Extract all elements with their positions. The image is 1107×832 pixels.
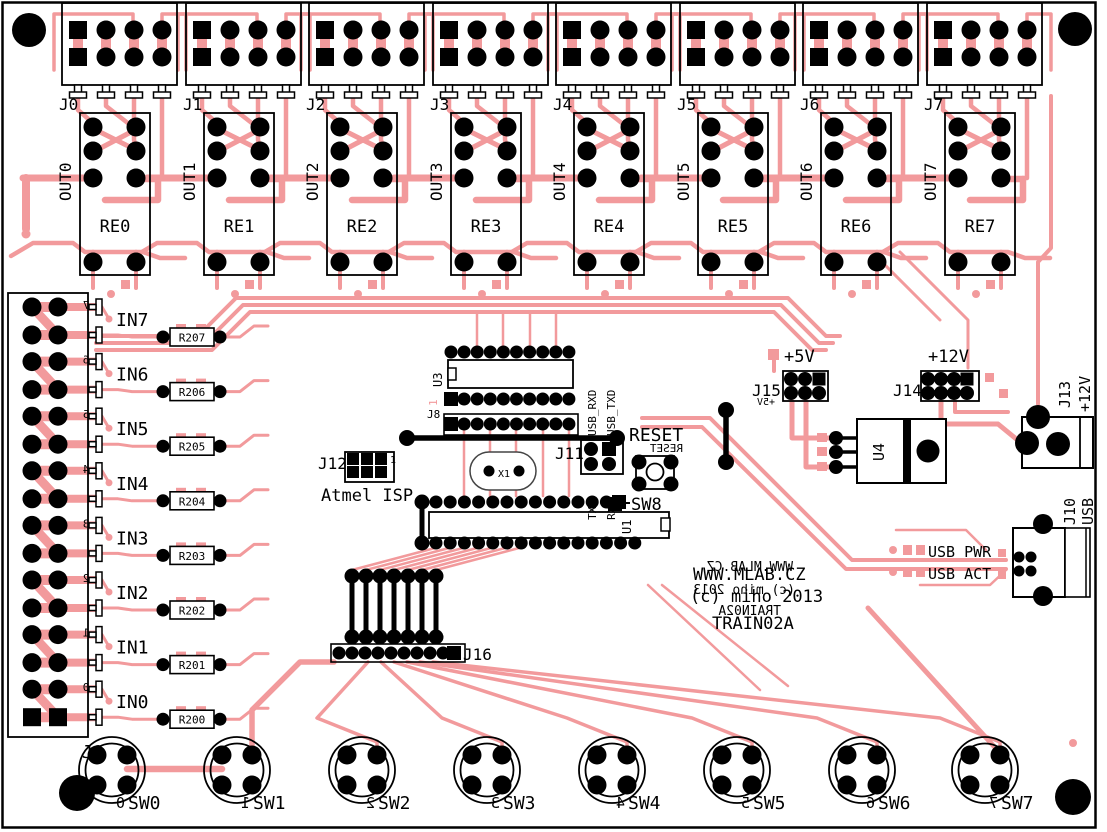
pad — [214, 658, 227, 671]
j13-12v-label: +12V — [1076, 376, 1094, 412]
pad-square — [440, 48, 458, 66]
pad — [771, 21, 790, 40]
connector-label: J2 — [306, 95, 325, 114]
outline — [96, 627, 102, 643]
pad — [510, 346, 523, 359]
pad — [49, 352, 68, 371]
outline — [373, 92, 390, 98]
u1-label: U1 — [620, 520, 634, 534]
pad — [23, 680, 42, 699]
pad — [84, 142, 103, 161]
usb-txd-label: USB_TXD — [605, 390, 618, 436]
pad — [868, 142, 887, 161]
pad — [458, 393, 471, 406]
pad — [430, 496, 443, 509]
pad — [471, 393, 484, 406]
pad — [214, 385, 227, 398]
pad-square — [934, 21, 952, 39]
pad — [949, 118, 968, 137]
pad — [277, 48, 296, 67]
pad — [430, 537, 443, 550]
pad-square — [934, 48, 952, 66]
outline — [96, 655, 102, 671]
pad — [578, 253, 597, 272]
pad — [345, 569, 360, 584]
smd-pad — [739, 280, 748, 289]
pad — [829, 460, 843, 474]
outline — [222, 92, 239, 98]
pad-square — [813, 373, 826, 386]
pad — [493, 746, 512, 765]
pad — [621, 253, 640, 272]
pad — [429, 630, 444, 645]
outline — [278, 92, 295, 98]
pad-square — [447, 646, 461, 660]
outline — [525, 92, 542, 98]
pad — [990, 21, 1009, 40]
smd-pad — [998, 571, 1006, 579]
pad — [458, 496, 471, 509]
pad — [399, 430, 415, 446]
pad — [868, 746, 887, 765]
board-outline — [3, 3, 1096, 828]
mirrored-bottom-silk-label: 6 — [866, 794, 875, 812]
via — [106, 425, 113, 432]
pad — [949, 253, 968, 272]
pad — [127, 169, 146, 188]
pad — [784, 386, 798, 400]
outline — [744, 92, 761, 98]
pad — [157, 331, 170, 344]
pad — [372, 48, 391, 67]
outline — [867, 92, 884, 98]
pad — [838, 48, 857, 67]
pad-square — [49, 708, 67, 726]
pad — [586, 537, 599, 550]
pad — [372, 21, 391, 40]
pad — [458, 346, 471, 359]
relay-label: RE2 — [347, 217, 378, 237]
j15-label: J15 — [752, 381, 781, 400]
pad — [484, 346, 497, 359]
pad — [1033, 514, 1053, 534]
smd-pad — [817, 447, 827, 456]
pad — [713, 776, 732, 795]
outline — [895, 92, 912, 98]
pad — [221, 21, 240, 40]
outline — [401, 92, 418, 98]
pad — [866, 21, 885, 40]
pad — [562, 418, 575, 431]
outline — [772, 92, 789, 98]
outline — [96, 572, 102, 588]
pad — [344, 48, 363, 67]
outline — [154, 92, 171, 98]
pad — [524, 48, 543, 67]
resistor-label: R202 — [179, 605, 206, 618]
pad — [702, 169, 721, 188]
j14-label: J14 — [893, 381, 922, 400]
pad — [387, 630, 402, 645]
outline — [89, 442, 96, 447]
pad — [243, 776, 262, 795]
pad — [214, 604, 227, 617]
pad — [868, 776, 887, 795]
pad — [214, 440, 227, 453]
pad — [619, 48, 638, 67]
pad-square — [316, 21, 334, 39]
outline — [96, 327, 102, 343]
pad — [523, 418, 536, 431]
pad — [562, 346, 575, 359]
u4-label: U4 — [870, 443, 888, 461]
out-label: OUT6 — [797, 162, 816, 201]
pad — [331, 253, 350, 272]
connector-label: J5 — [677, 95, 696, 114]
outline — [250, 92, 267, 98]
smd-pad — [999, 389, 1008, 398]
outline — [96, 408, 102, 424]
pad — [557, 537, 570, 550]
pad — [23, 380, 42, 399]
pad — [713, 746, 732, 765]
pad — [1014, 566, 1025, 577]
pad-square — [193, 48, 211, 66]
smd-pad — [121, 280, 130, 289]
usb-act-label: USB ACT — [928, 565, 991, 583]
pad-square — [687, 21, 705, 39]
outline — [96, 436, 102, 452]
pad — [331, 118, 350, 137]
pad — [647, 464, 664, 481]
pad — [208, 169, 227, 188]
via — [22, 230, 31, 239]
pad — [345, 630, 360, 645]
pad — [745, 169, 764, 188]
pad — [562, 393, 575, 406]
switch-label: SW0 — [128, 793, 161, 814]
smd-pad — [615, 280, 624, 289]
pad — [125, 48, 144, 67]
pad — [472, 537, 485, 550]
mirrored-bottom-silk-label: 0 — [116, 794, 125, 812]
pad — [496, 48, 515, 67]
pad — [472, 496, 485, 509]
pad — [373, 569, 388, 584]
via — [889, 546, 897, 554]
pad — [221, 48, 240, 67]
outline — [96, 463, 102, 479]
pad — [825, 253, 844, 272]
pad — [825, 169, 844, 188]
pad — [49, 625, 68, 644]
j12-label: J12 — [318, 454, 347, 473]
pad — [374, 169, 393, 188]
pad — [23, 461, 42, 480]
pad — [584, 457, 598, 471]
pad — [745, 142, 764, 161]
mirrored-bottom-silk-label: 3 — [491, 794, 500, 812]
pad — [157, 658, 170, 671]
switch-label: SW6 — [878, 793, 911, 814]
pad — [23, 653, 42, 672]
pad — [88, 776, 107, 795]
relay-label: RE0 — [100, 217, 131, 237]
pad — [497, 393, 510, 406]
pad — [493, 776, 512, 795]
pad — [359, 630, 374, 645]
pad — [498, 169, 517, 188]
pad-square — [563, 48, 581, 66]
pad — [501, 496, 514, 509]
outline — [96, 600, 102, 616]
pad — [455, 118, 474, 137]
pad — [157, 713, 170, 726]
pad — [498, 142, 517, 161]
resistor-label: R201 — [179, 659, 206, 672]
pad — [591, 48, 610, 67]
pad — [157, 440, 170, 453]
u3-label: U3 — [431, 373, 445, 387]
outline — [96, 681, 102, 697]
outline — [96, 299, 102, 315]
pad — [400, 21, 419, 40]
pad — [798, 386, 812, 400]
pad — [84, 169, 103, 188]
pad — [621, 118, 640, 137]
relay-label: RE3 — [471, 217, 502, 237]
smd-pad — [903, 545, 912, 555]
pad — [208, 253, 227, 272]
pad — [868, 169, 887, 188]
pad — [743, 48, 762, 67]
pad — [415, 630, 430, 645]
pad — [49, 326, 68, 345]
out-label: OUT5 — [674, 162, 693, 201]
pad — [718, 454, 734, 470]
outline — [661, 518, 670, 531]
relay-label: RE1 — [224, 217, 255, 237]
pad — [471, 418, 484, 431]
outline — [345, 92, 362, 98]
pad — [49, 407, 68, 426]
pad — [743, 776, 762, 795]
pad — [962, 48, 981, 67]
outline — [448, 368, 456, 380]
mirrored-bottom-silk-label: 0 — [83, 681, 90, 694]
pad — [208, 118, 227, 137]
input-label: IN6 — [116, 365, 149, 386]
smd-pad — [985, 373, 994, 382]
pad — [1015, 431, 1039, 455]
pad — [213, 746, 232, 765]
switch-label: SW7 — [1001, 793, 1034, 814]
smd-pad — [862, 280, 871, 289]
reset-label: RESET — [629, 425, 683, 446]
pad-square — [361, 453, 373, 465]
input-label: IN5 — [116, 419, 149, 440]
pad — [498, 253, 517, 272]
pad — [23, 435, 42, 454]
connector-label: J1 — [183, 95, 202, 114]
pad — [374, 253, 393, 272]
pad — [415, 536, 430, 551]
outline — [991, 92, 1008, 98]
pad — [463, 776, 482, 795]
outline — [89, 660, 96, 665]
mounting-hole — [1058, 12, 1092, 46]
pad — [514, 466, 525, 477]
pad-square — [375, 466, 387, 478]
pad-square — [444, 417, 458, 431]
pad-square — [961, 373, 974, 386]
mirrored-bottom-silk-label: 4 — [616, 794, 625, 812]
mirrored-bottom-silk-label: 6 — [83, 354, 90, 367]
pad — [664, 477, 679, 492]
pad — [1046, 432, 1070, 456]
pad — [619, 21, 638, 40]
out-label: OUT7 — [921, 162, 940, 201]
smd-pad — [903, 567, 912, 577]
pad — [745, 118, 764, 137]
connector-label: J6 — [800, 95, 819, 114]
pad — [894, 48, 913, 67]
pad — [584, 442, 598, 456]
pad — [949, 142, 968, 161]
pad — [743, 746, 762, 765]
pad — [992, 253, 1011, 272]
pad — [960, 386, 974, 400]
pad — [359, 647, 372, 660]
pad — [49, 544, 68, 563]
pad — [127, 253, 146, 272]
pad — [486, 496, 499, 509]
pad — [825, 142, 844, 161]
pad — [338, 776, 357, 795]
outline — [89, 333, 96, 338]
pad — [1026, 566, 1037, 577]
outline — [89, 551, 96, 556]
header-j12-atmel-isp — [345, 452, 394, 482]
mirrored-bottom-silk-label: 3 — [83, 517, 90, 530]
pad — [243, 746, 262, 765]
resistor-label: R206 — [179, 386, 206, 399]
relay-label: RE5 — [718, 217, 749, 237]
pad — [471, 346, 484, 359]
outline — [716, 92, 733, 98]
relay-label: RE4 — [594, 217, 625, 237]
via — [106, 370, 113, 377]
pad — [743, 21, 762, 40]
pad — [249, 21, 268, 40]
pad — [838, 746, 857, 765]
pad — [1018, 48, 1037, 67]
pad — [486, 537, 499, 550]
pad — [602, 457, 616, 471]
pad — [628, 537, 641, 550]
pad — [157, 494, 170, 507]
pad — [632, 455, 647, 470]
pad — [415, 569, 430, 584]
pad — [812, 386, 826, 400]
outline — [126, 92, 143, 98]
pad — [702, 142, 721, 161]
pad — [153, 48, 172, 67]
j13-label: J13 — [1056, 381, 1074, 408]
pad — [214, 713, 227, 726]
pad — [251, 169, 270, 188]
pad — [23, 516, 42, 535]
pad — [127, 142, 146, 161]
pad — [621, 169, 640, 188]
pad — [523, 393, 536, 406]
outline — [963, 92, 980, 98]
pad — [338, 746, 357, 765]
pad — [445, 346, 458, 359]
relay-label: RE6 — [841, 217, 872, 237]
out-label: OUT1 — [180, 162, 199, 201]
pad — [49, 489, 68, 508]
pad — [125, 21, 144, 40]
pad — [368, 746, 387, 765]
pad — [458, 418, 471, 431]
pad — [497, 346, 510, 359]
via — [848, 290, 856, 298]
plus5v-label: +5V — [784, 347, 815, 367]
pad — [529, 496, 542, 509]
pad-square — [440, 21, 458, 39]
smd-pad — [817, 433, 827, 442]
j16-label: J16 — [463, 645, 492, 664]
pad — [529, 537, 542, 550]
pad — [647, 48, 666, 67]
relay-label: RE7 — [965, 217, 996, 237]
pad — [496, 21, 515, 40]
pad-square — [69, 48, 87, 66]
pad — [455, 253, 474, 272]
pad — [536, 393, 549, 406]
pad — [49, 380, 68, 399]
outline — [98, 92, 115, 98]
pad — [543, 537, 556, 550]
pad — [97, 21, 116, 40]
pad — [331, 142, 350, 161]
pad — [991, 746, 1010, 765]
pad — [344, 21, 363, 40]
pad-square — [316, 48, 334, 66]
pad — [398, 647, 411, 660]
pad — [934, 372, 948, 386]
via — [106, 534, 113, 541]
mounting-hole — [1055, 779, 1091, 815]
pad — [798, 372, 812, 386]
pad — [1014, 552, 1025, 563]
pad — [157, 604, 170, 617]
u3-pin1-label: 1 — [427, 399, 440, 406]
connector-j10-usb — [1013, 514, 1090, 606]
mirrored-bottom-silk-label: 4 — [82, 463, 89, 476]
pad — [991, 776, 1010, 795]
pad — [331, 169, 350, 188]
via — [106, 698, 113, 705]
mirrored-bottom-silk-label: 2 — [83, 572, 90, 585]
outline — [839, 92, 856, 98]
j9-label: J9 — [82, 742, 104, 763]
smd-pad — [492, 280, 501, 289]
via — [106, 643, 113, 650]
pad — [829, 445, 843, 459]
pad — [23, 407, 42, 426]
